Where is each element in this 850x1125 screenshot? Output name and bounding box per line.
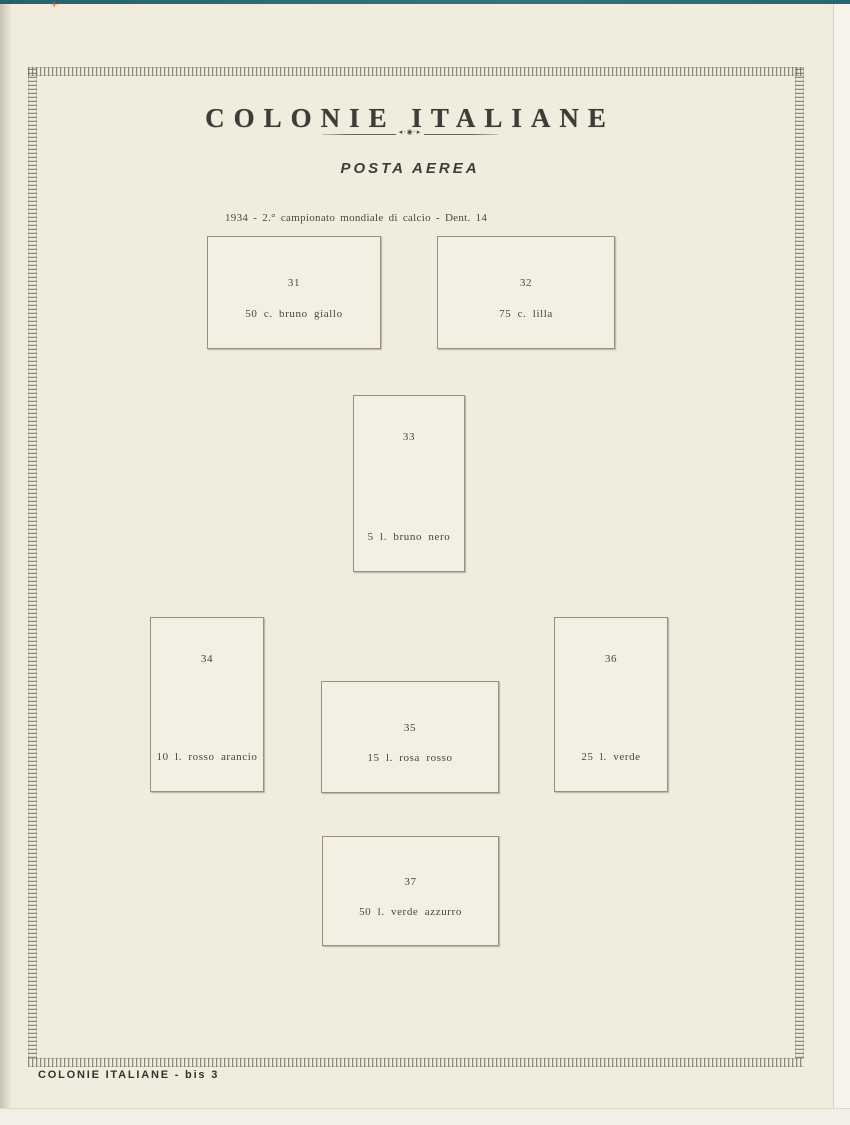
stamp-label: 5 l. bruno nero [354, 531, 464, 543]
stamp-label: 25 l. verde [555, 751, 667, 763]
stamp-box-34: 34 10 l. rosso arancio [150, 617, 264, 792]
footer-page-label: COLONIE ITALIANE - bis 3 [38, 1069, 219, 1081]
hatched-border-left [28, 67, 37, 1058]
hatched-border-right [795, 67, 804, 1058]
stamp-box-33: 33 5 l. bruno nero [353, 395, 465, 572]
section-title: POSTA AEREA [0, 160, 820, 177]
stamp-label: 10 l. rosso arancio [151, 751, 263, 763]
stamp-number: 34 [151, 653, 263, 665]
stamp-box-35: 35 15 l. rosa rosso [321, 681, 499, 793]
page-edge-right [833, 4, 850, 1125]
stamp-number: 33 [354, 431, 464, 443]
hatched-border-top [28, 67, 804, 76]
stamp-number: 36 [555, 653, 667, 665]
divider-ornament-icon: ◂·◉·▸ [322, 128, 498, 136]
registration-cross-icon: + [50, 0, 58, 10]
scan-edge-top [0, 0, 850, 4]
stamp-number: 32 [438, 277, 614, 289]
series-caption: 1934 - 2.° campionato mondiale di calcio… [225, 212, 487, 224]
stamp-label: 50 l. verde azzurro [323, 906, 498, 918]
stamp-number: 35 [322, 722, 498, 734]
stamp-box-32: 32 75 c. lilla [437, 236, 615, 349]
stamp-number: 37 [323, 876, 498, 888]
page-edge-bottom [0, 1108, 850, 1125]
stamp-label: 50 c. bruno giallo [208, 308, 380, 320]
stamp-label: 15 l. rosa rosso [322, 752, 498, 764]
stamp-box-37: 37 50 l. verde azzurro [322, 836, 499, 946]
album-page: + COLONIE ITALIANE ◂·◉·▸ POSTA AEREA 193… [0, 0, 850, 1125]
stamp-number: 31 [208, 277, 380, 289]
stamp-label: 75 c. lilla [438, 308, 614, 320]
divider-ornament-glyph: ◂·◉·▸ [396, 128, 425, 136]
stamp-box-31: 31 50 c. bruno giallo [207, 236, 381, 349]
stamp-box-36: 36 25 l. verde [554, 617, 668, 792]
hatched-border-bottom [28, 1058, 804, 1067]
